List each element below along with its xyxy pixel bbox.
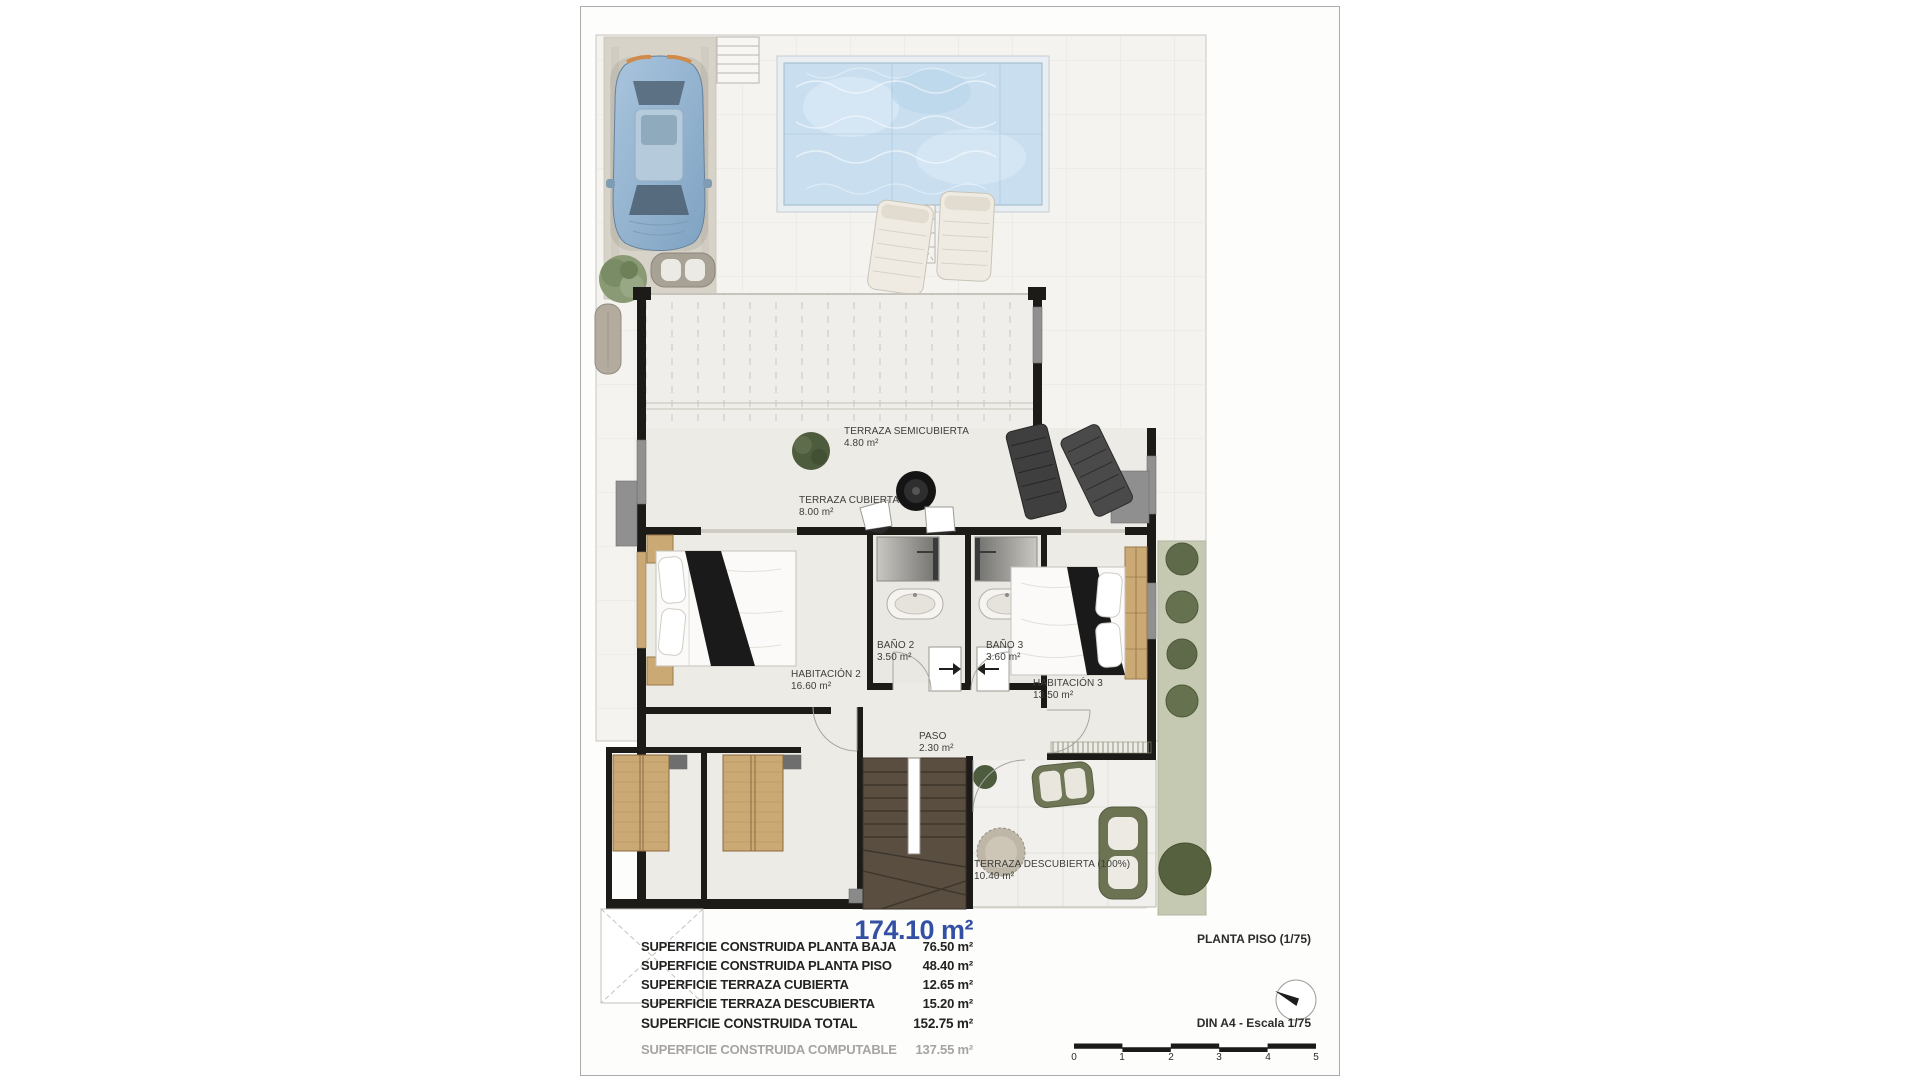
table-row-total: SUPERFICIE CONSTRUIDA TOTAL 152.75 m²	[641, 1014, 973, 1033]
table-row: SUPERFICIE TERRAZA DESCUBIERTA 15.20 m²	[641, 994, 973, 1013]
surface-summary-table: SUPERFICIE CONSTRUIDA PLANTA BAJA 76.50 …	[641, 937, 973, 1059]
entry-steps	[717, 37, 759, 83]
table-row-computable: SUPERFICIE CONSTRUIDA COMPUTABLE 137.55 …	[641, 1040, 973, 1059]
window-sill-hab2	[637, 552, 646, 648]
label-terraza-semicubierta: TERRAZA SEMICUBIERTA 4.80 m²	[844, 426, 969, 449]
car	[606, 56, 712, 251]
louver-window	[1051, 742, 1151, 753]
stairs	[863, 758, 966, 909]
bed-hab2	[647, 535, 796, 685]
scale-note: DIN A4 - Escala 1/75	[1071, 1016, 1311, 1030]
scale-tick: 2	[1164, 1052, 1178, 1063]
label-bano-2: BAÑO 2 3.50 m²	[877, 640, 914, 663]
garden-bench	[651, 253, 715, 287]
plan-sheet: TERRAZA SEMICUBIERTA 4.80 m² TERRAZA CUB…	[580, 6, 1340, 1076]
scale-bar	[1074, 1044, 1316, 1053]
pool	[777, 56, 1049, 212]
screenshot-canvas: TERRAZA SEMICUBIERTA 4.80 m² TERRAZA CUB…	[0, 0, 1920, 1080]
plan-title: PLANTA PISO (1/75)	[1041, 932, 1311, 946]
label-paso: PASO 2.30 m²	[919, 731, 954, 754]
scale-tick: 0	[1067, 1052, 1081, 1063]
north-arrow-icon	[1275, 980, 1316, 1020]
label-habitacion-3: HABITACIÓN 3 13.50 m²	[1033, 678, 1103, 701]
garden-sofa-left	[595, 304, 621, 374]
scale-tick: 3	[1212, 1052, 1226, 1063]
table-row: SUPERFICIE CONSTRUIDA PLANTA BAJA 76.50 …	[641, 937, 973, 956]
table-row: SUPERFICIE CONSTRUIDA PLANTA PISO 48.40 …	[641, 956, 973, 975]
garden-lawn	[1158, 541, 1211, 915]
terrace-semicovered-deck	[646, 293, 1033, 428]
table-row: SUPERFICIE TERRAZA CUBIERTA 12.65 m²	[641, 975, 973, 994]
label-terraza-descubierta: TERRAZA DESCUBIERTA (100%) 10.40 m²	[974, 859, 1130, 882]
label-habitacion-2: HABITACIÓN 2 16.60 m²	[791, 669, 861, 692]
bed-hab3	[1011, 547, 1147, 679]
scale-tick: 5	[1309, 1052, 1323, 1063]
label-bano-3: BAÑO 3 3.60 m²	[986, 640, 1023, 663]
terrace-open	[973, 760, 1156, 907]
label-terraza-cubierta: TERRAZA CUBIERTA 8.00 m²	[799, 495, 899, 518]
scale-tick: 4	[1261, 1052, 1275, 1063]
scale-tick: 1	[1115, 1052, 1129, 1063]
